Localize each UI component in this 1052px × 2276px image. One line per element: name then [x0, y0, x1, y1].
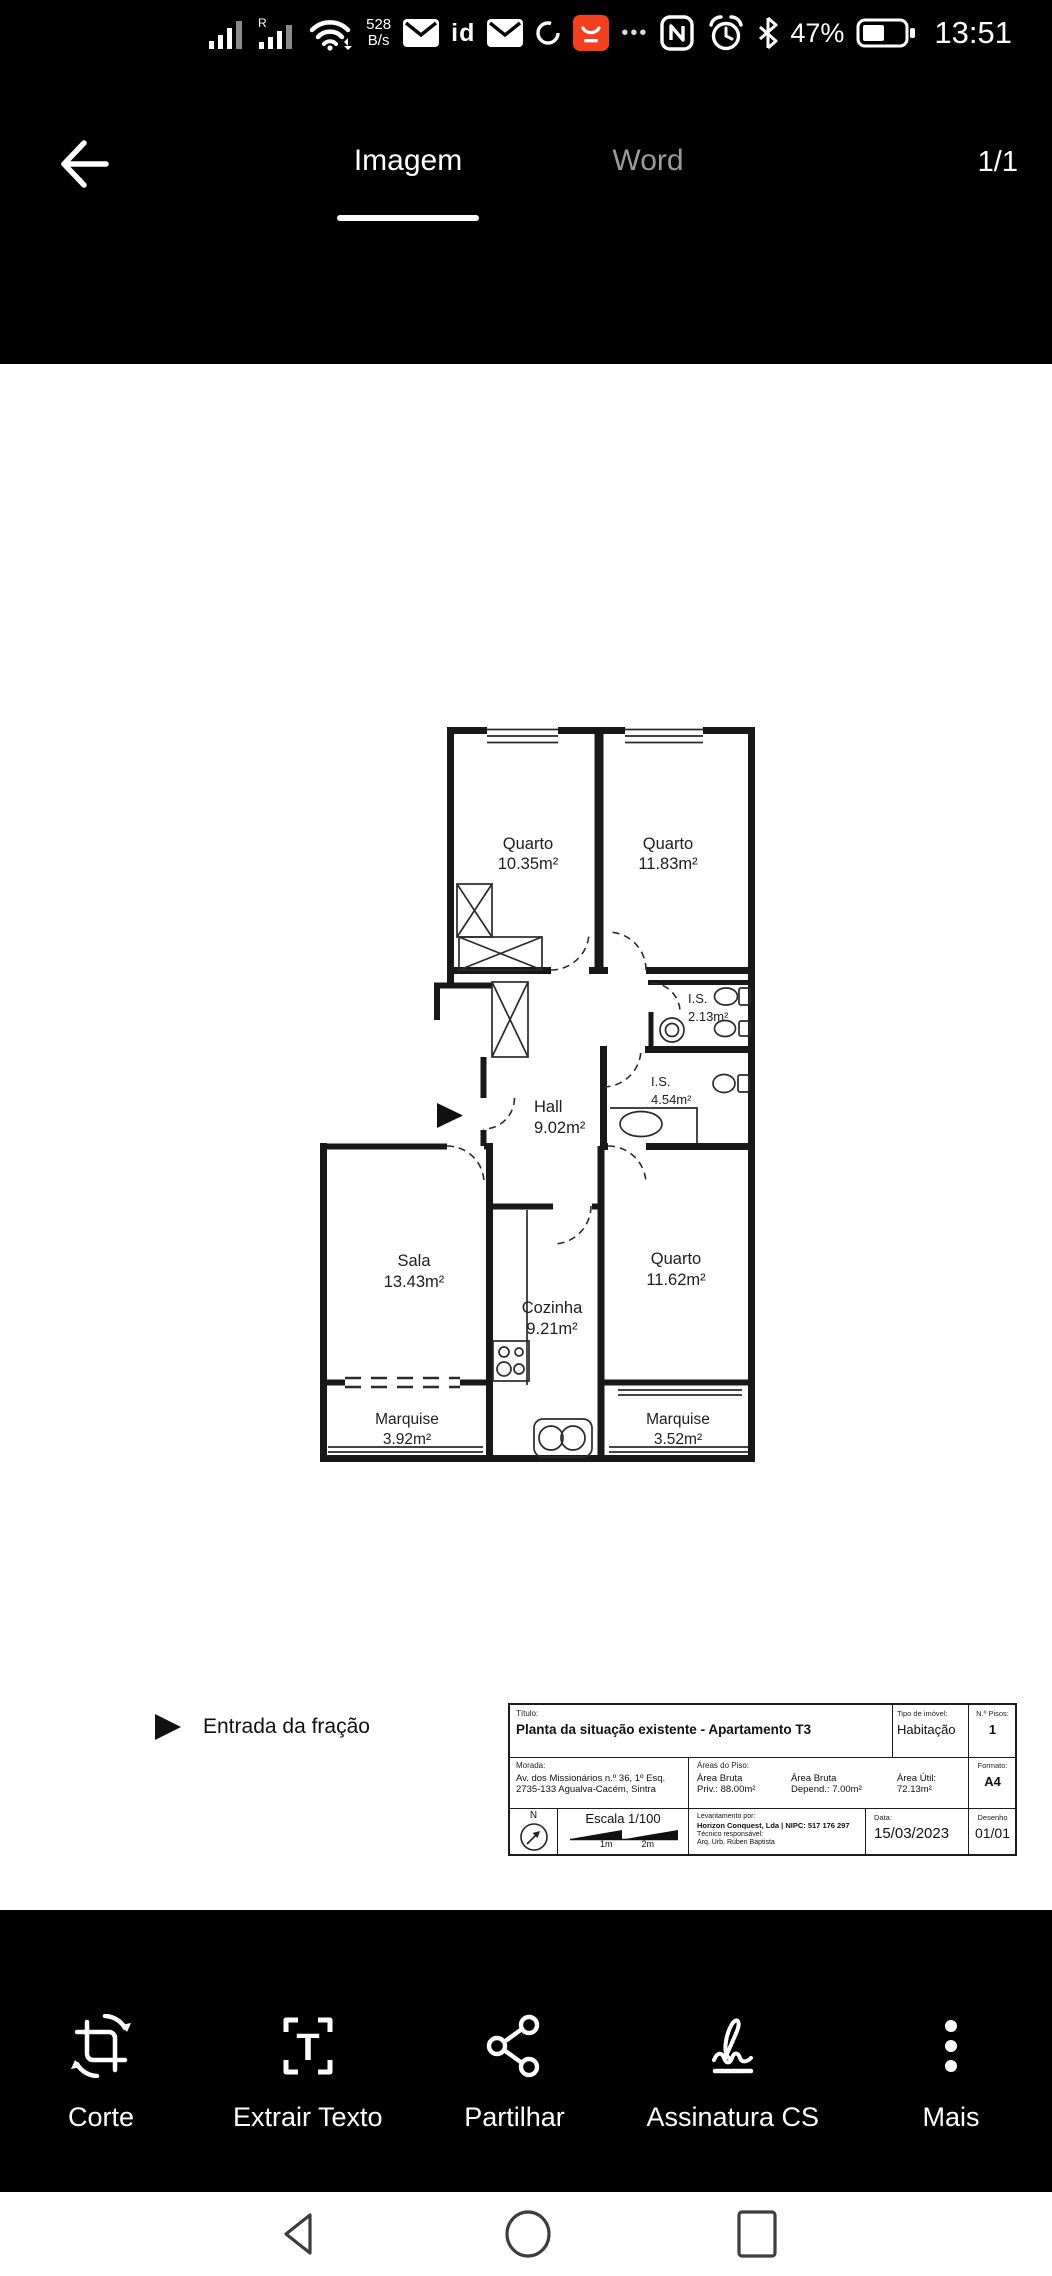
area-bruta-dep: Área Bruta Depend.: 7.00m²	[791, 1773, 897, 1795]
tipo-imovel-label: Tipo de imóvel:	[897, 1709, 964, 1718]
room-area: 2.13m²	[688, 1009, 729, 1024]
morada-line1: Av. dos Missionários n.º 36, 1º Esq.	[516, 1773, 682, 1784]
morada-cell: Morada: Av. dos Missionários n.º 36, 1º …	[510, 1757, 688, 1808]
document-image-viewer[interactable]: Quarto 10.35m² Quarto 11.83m² I.S. 2.13m…	[0, 364, 1052, 1910]
crop-rotate-icon	[69, 2014, 133, 2078]
tecnico-nome: Arq. Urb. Rúben Baptista	[697, 1839, 857, 1846]
titulo-label: Título:	[516, 1709, 886, 1718]
levantamento-label: Levantamento por:	[697, 1813, 857, 1820]
tipo-imovel-value: Habitação	[897, 1722, 964, 1737]
extract-text-icon: T	[276, 2014, 340, 2078]
n-pisos-label: N.º Pisos:	[971, 1709, 1014, 1718]
alarm-clock-icon	[706, 14, 746, 52]
room-area: 10.35m²	[498, 855, 559, 873]
active-tab-underline	[337, 215, 479, 221]
phone-screen: R 528 B/s id	[0, 0, 1052, 2276]
n-pisos-cell: N.º Pisos: 1	[968, 1705, 1016, 1757]
toolbar-item-mais[interactable]: Mais	[881, 2014, 1021, 2133]
areas-piso-label: Áreas do Piso:	[697, 1761, 960, 1770]
mail2-icon	[487, 19, 523, 47]
room-area: 11.83m²	[638, 855, 698, 873]
nav-back-icon[interactable]	[274, 2209, 320, 2259]
desenho-label: Desenho	[971, 1813, 1014, 1822]
desenho-value: 01/01	[971, 1825, 1014, 1841]
entrance-arrow	[437, 1103, 463, 1128]
room-area: 13.43m²	[384, 1273, 445, 1291]
battery-percent: 47%	[790, 18, 844, 49]
data-cell: Data: 15/03/2023	[865, 1808, 968, 1855]
toolbar-item-corte[interactable]: Corte	[31, 2014, 171, 2133]
room-label: Marquise	[646, 1411, 710, 1428]
toolbar-label: Assinatura CS	[646, 2102, 819, 2133]
scale-2m-label: 2m	[641, 1839, 654, 1849]
north-compass-cell: N	[510, 1808, 557, 1855]
room-label: I.S.	[688, 991, 708, 1006]
room-area: 11.62m²	[646, 1271, 706, 1289]
id-app-icon: id	[451, 19, 475, 48]
formato-label: Formato:	[971, 1761, 1014, 1770]
levantamento-empresa: Horizon Conquest, Lda | NIPC: 517 176 29…	[697, 1821, 857, 1830]
room-label: Quarto	[643, 835, 693, 853]
n-pisos-value: 1	[971, 1722, 1014, 1737]
desenho-cell: Desenho 01/01	[968, 1808, 1016, 1855]
wifi-icon	[308, 15, 354, 51]
data-value: 15/03/2023	[874, 1825, 960, 1842]
morada-line2: 2735-133 Agualva-Cacém, Sintra	[516, 1784, 682, 1795]
escala-cell: Escala 1/100 1m 2m	[557, 1808, 688, 1855]
room-area: 3.52m²	[654, 1431, 702, 1448]
area-bruta-priv: Área Bruta Priv.: 88.00m²	[697, 1773, 791, 1795]
room-label: Quarto	[651, 1250, 701, 1268]
data-label: Data:	[874, 1813, 960, 1822]
areas-piso-cell: Áreas do Piso: Área Bruta Priv.: 88.00m²…	[688, 1757, 968, 1808]
floor-plan-drawing: Quarto 10.35m² Quarto 11.83m² I.S. 2.13m…	[300, 715, 770, 1480]
signature-icon	[701, 2014, 765, 2078]
formato-cell: Formato: A4	[968, 1757, 1016, 1808]
toolbar-label: Extrair Texto	[233, 2102, 383, 2133]
room-label: Quarto	[503, 835, 553, 853]
toolbar-item-partilhar[interactable]: Partilhar	[444, 2014, 584, 2133]
page-indicator: 1/1	[978, 146, 1018, 179]
android-nav-bar	[0, 2192, 1052, 2276]
bluetooth-icon	[758, 16, 778, 50]
room-area: 9.21m²	[526, 1320, 578, 1338]
north-compass-icon	[518, 1821, 550, 1853]
nav-recents-icon[interactable]	[736, 2209, 778, 2259]
room-label: Marquise	[375, 1411, 439, 1428]
entrance-legend: Entrada da fração	[155, 1714, 370, 1740]
more-icon	[943, 2014, 959, 2078]
scale-1m-label: 1m	[600, 1839, 613, 1849]
sync-circle-icon	[535, 20, 561, 46]
nav-home-icon[interactable]	[502, 2209, 554, 2259]
levantamento-cell: Levantamento por: Horizon Conquest, Lda …	[688, 1808, 865, 1855]
drawing-title: Planta da situação existente - Apartamen…	[516, 1722, 886, 1737]
morada-label: Morada:	[516, 1761, 682, 1770]
aliexpress-app-icon	[573, 15, 609, 51]
back-arrow-icon[interactable]	[56, 136, 114, 192]
svg-text:R: R	[258, 16, 267, 30]
room-area: 3.92m²	[383, 1431, 431, 1448]
share-icon	[485, 2014, 543, 2078]
cell-signal2-roaming-icon: R	[258, 15, 296, 51]
status-bar: R 528 B/s id	[0, 0, 1052, 66]
bottom-toolbar: Corte T Extrair Texto Partilhar	[0, 1910, 1052, 2192]
cell-signal-icon	[209, 15, 246, 51]
escala-label: Escala 1/100	[558, 1811, 688, 1826]
room-area: 4.54m²	[651, 1092, 692, 1107]
tab-imagem[interactable]: Imagem	[354, 144, 462, 178]
toolbar-label: Mais	[922, 2102, 979, 2133]
title-block: Título: Planta da situação existente - A…	[508, 1703, 1017, 1856]
svg-text:T: T	[296, 2027, 319, 2069]
overflow-dots-icon: •••	[621, 22, 648, 45]
battery-icon	[856, 17, 916, 49]
room-label: Cozinha	[522, 1299, 583, 1317]
clock-time: 13:51	[934, 15, 1012, 51]
entrance-legend-label: Entrada da fração	[203, 1715, 370, 1739]
tecnico-label: Técnico responsável:	[697, 1831, 857, 1838]
toolbar-item-assinatura[interactable]: Assinatura CS	[646, 2014, 819, 2133]
nfc-icon	[660, 15, 694, 51]
toolbar-item-extrair-texto[interactable]: T Extrair Texto	[233, 2014, 383, 2133]
toolbar-label: Partilhar	[464, 2102, 565, 2133]
room-label: Hall	[534, 1098, 562, 1116]
tipo-imovel-cell: Tipo de imóvel: Habitação	[892, 1705, 968, 1757]
titulo-cell: Título: Planta da situação existente - A…	[510, 1705, 892, 1757]
area-util: Área Útil: 72.13m²	[897, 1773, 957, 1795]
entrance-arrow-icon	[155, 1714, 181, 1740]
app-header: Imagem Word 1/1	[0, 96, 1052, 256]
room-label: Sala	[397, 1252, 431, 1270]
room-label: I.S.	[651, 1074, 671, 1089]
network-speed: 528 B/s	[366, 17, 391, 49]
tab-word[interactable]: Word	[612, 144, 683, 178]
toolbar-label: Corte	[68, 2102, 134, 2133]
north-label: N	[510, 1811, 557, 1821]
scale-bar	[566, 1827, 680, 1841]
formato-value: A4	[971, 1774, 1014, 1789]
mail-icon	[403, 19, 439, 47]
room-area: 9.02m²	[534, 1119, 586, 1137]
